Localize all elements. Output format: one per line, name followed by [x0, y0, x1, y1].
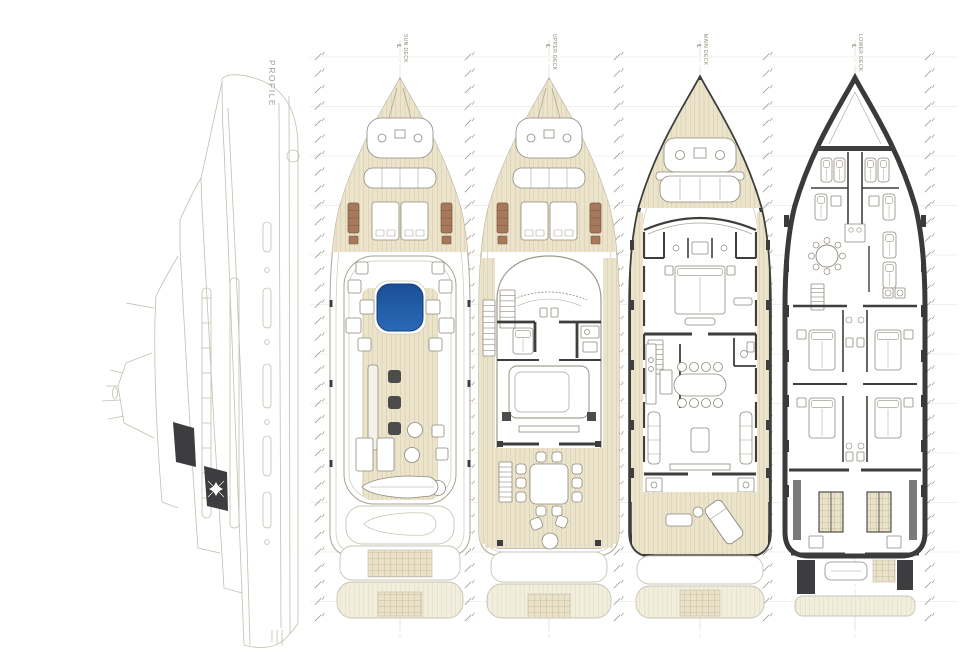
- profile-hull-window: [263, 364, 271, 408]
- station-number-mark: [472, 283, 474, 286]
- station-number-mark: [621, 250, 623, 253]
- deck-label-lower-deck: LOWER DECK: [857, 34, 863, 72]
- stanchion: [630, 300, 634, 310]
- station-number-mark: [621, 497, 623, 500]
- day-head: [738, 478, 754, 492]
- wardrobe: [869, 196, 879, 206]
- nightstand: [904, 398, 913, 407]
- station-number-mark: [322, 580, 324, 583]
- station-number-mark: [932, 398, 934, 401]
- station-number-mark: [322, 233, 324, 236]
- station-number-mark: [621, 415, 623, 418]
- station-number-mark: [932, 464, 934, 467]
- profile-dark-glass-panel: [173, 422, 196, 467]
- station-tick: [315, 235, 321, 241]
- stanchion: [630, 468, 634, 478]
- helm-seat: [540, 308, 547, 317]
- profile-whip-antenna: [126, 303, 154, 308]
- station-number-mark: [322, 316, 324, 319]
- station-number-mark: [322, 217, 324, 220]
- station-number-mark: [932, 365, 934, 368]
- toilet: [846, 452, 853, 461]
- station-tick: [925, 565, 931, 571]
- crew-mess-table: [816, 245, 838, 267]
- station-tick: [315, 120, 321, 126]
- deck-label-sun-deck: SUN DECK: [402, 34, 408, 63]
- station-number-mark: [472, 332, 474, 335]
- station-number-mark: [322, 299, 324, 302]
- station-tick: [315, 169, 321, 175]
- bar-stool: [388, 396, 401, 409]
- station-number-mark: [621, 431, 623, 434]
- station-number-mark: [472, 580, 474, 583]
- station-tick: [925, 87, 931, 93]
- profile-porthole: [265, 268, 270, 273]
- pillar: [497, 540, 503, 546]
- aft-sofa: [666, 514, 692, 526]
- station-tick: [763, 582, 769, 588]
- station-number-mark: [472, 233, 474, 236]
- station-number-mark: [322, 481, 324, 484]
- bed-bench: [685, 318, 715, 325]
- hull-frame-mark: [921, 260, 926, 272]
- mess-chair: [824, 238, 830, 244]
- station-number-mark: [322, 68, 324, 71]
- station-number-mark: [932, 349, 934, 352]
- station-number-mark: [932, 613, 934, 616]
- profile-keel: [222, 75, 298, 623]
- station-number-mark: [621, 382, 623, 385]
- station-tick: [614, 186, 620, 192]
- dining-chair: [678, 363, 687, 372]
- saloon-sofa: [740, 412, 752, 464]
- bar-stool: [388, 370, 401, 383]
- side-table: [591, 236, 600, 244]
- station-tick: [763, 120, 769, 126]
- centerline-symbol: ℄: [544, 44, 551, 48]
- station-number-mark: [770, 101, 772, 104]
- dining-chair: [536, 506, 546, 516]
- station-number-mark: [932, 580, 934, 583]
- station-number-mark: [621, 134, 623, 137]
- pantry-counter: [581, 326, 599, 338]
- profile-chine: [279, 103, 281, 628]
- aft-deck: [632, 492, 768, 554]
- station-number-mark: [472, 349, 474, 352]
- hull-frame-mark: [921, 440, 926, 452]
- dining-chair: [572, 464, 582, 474]
- mess-chair: [835, 264, 841, 270]
- station-number-mark: [322, 431, 324, 434]
- station-tick: [465, 120, 471, 126]
- station-tick: [925, 120, 931, 126]
- dining-chair: [714, 363, 723, 372]
- toilet: [857, 452, 864, 461]
- pillar: [595, 540, 601, 546]
- station-number-mark: [770, 184, 772, 187]
- station-number-mark: [621, 233, 623, 236]
- station-number-mark: [472, 134, 474, 137]
- station-tick: [614, 615, 620, 621]
- bar-stool: [388, 422, 401, 435]
- station-number-mark: [932, 481, 934, 484]
- station-number-mark: [932, 299, 934, 302]
- station-tick: [465, 219, 471, 225]
- station-number-mark: [621, 151, 623, 154]
- cleat: [468, 460, 471, 467]
- station-tick: [614, 582, 620, 588]
- station-tick: [315, 615, 321, 621]
- station-number-mark: [472, 464, 474, 467]
- station-tick: [315, 433, 321, 439]
- station-number-mark: [932, 118, 934, 121]
- station-number-mark: [770, 118, 772, 121]
- station-number-mark: [770, 151, 772, 154]
- deck-plan-upper-deck: [477, 78, 621, 618]
- station-tick: [614, 169, 620, 175]
- profile-mast: [118, 353, 154, 438]
- station-tick: [925, 582, 931, 588]
- hull-frame-mark: [921, 215, 926, 227]
- profile-hull-window: [263, 288, 271, 328]
- deck-seat: [436, 448, 448, 460]
- centerline-symbol: ℄: [850, 44, 857, 48]
- teak-side-deck: [757, 212, 769, 502]
- station-number-mark: [472, 68, 474, 71]
- station-number-mark: [932, 497, 934, 500]
- helm-seat: [551, 308, 558, 317]
- station-number-mark: [621, 481, 623, 484]
- station-number-mark: [621, 448, 623, 451]
- station-number-mark: [621, 530, 623, 533]
- hull-frame-mark: [784, 395, 789, 407]
- station-number-mark: [472, 596, 474, 599]
- station-number-mark: [322, 283, 324, 286]
- station-number-mark: [621, 101, 623, 104]
- station-number-mark: [621, 563, 623, 566]
- deck-seat: [429, 338, 442, 351]
- station-number-mark: [472, 514, 474, 517]
- wardrobe: [831, 196, 841, 206]
- toilet: [846, 338, 853, 347]
- station-number-mark: [322, 52, 324, 55]
- dining-chair: [690, 399, 699, 408]
- station-tick: [925, 186, 931, 192]
- deck-seat: [439, 280, 452, 293]
- station-number-mark: [322, 200, 324, 203]
- station-tick: [465, 565, 471, 571]
- stern-hatch: [378, 592, 422, 616]
- profile-maindeck-house: [201, 82, 242, 593]
- station-number-mark: [472, 217, 474, 220]
- station-number-mark: [472, 613, 474, 616]
- deck-seat: [346, 318, 361, 333]
- station-number-mark: [472, 167, 474, 170]
- profile-view: [102, 75, 299, 648]
- station-number-mark: [322, 596, 324, 599]
- stanchion: [630, 420, 634, 430]
- centerline-symbol: ℄: [395, 44, 402, 48]
- side-table: [587, 412, 596, 421]
- station-tick: [465, 582, 471, 588]
- hull-frame-mark: [784, 305, 789, 317]
- anchor-windlass: [664, 138, 736, 172]
- station-number-mark: [770, 580, 772, 583]
- station-number-mark: [932, 316, 934, 319]
- station-tick: [465, 186, 471, 192]
- station-tick: [315, 70, 321, 76]
- station-number-mark: [621, 283, 623, 286]
- station-tick: [925, 70, 931, 76]
- teak-aft-deck: [632, 492, 768, 554]
- station-number-mark: [472, 448, 474, 451]
- sunbed: [377, 438, 394, 471]
- station-number-mark: [621, 200, 623, 203]
- station-number-mark: [621, 266, 623, 269]
- station-tick: [763, 565, 769, 571]
- deck-seat: [360, 300, 374, 314]
- station-number-mark: [472, 250, 474, 253]
- station-number-mark: [621, 299, 623, 302]
- cocktail-table: [405, 448, 420, 463]
- stern-hatch: [528, 594, 570, 618]
- station-number-mark: [322, 349, 324, 352]
- station-number-mark: [472, 563, 474, 566]
- station-tick: [763, 70, 769, 76]
- nightstand: [665, 266, 673, 275]
- drawing-layers: [102, 40, 958, 647]
- station-number-mark: [621, 316, 623, 319]
- galley-island: [660, 370, 672, 394]
- profile-hull-window: [263, 222, 271, 252]
- station-tick: [315, 582, 321, 588]
- station-number-mark: [472, 266, 474, 269]
- dining-chair: [516, 492, 526, 502]
- dining-table: [674, 374, 726, 396]
- station-number-mark: [322, 151, 324, 154]
- shower: [692, 242, 708, 254]
- station-number-mark: [770, 167, 772, 170]
- station-number-mark: [322, 101, 324, 104]
- dining-chair: [516, 464, 526, 474]
- station-number-mark: [322, 332, 324, 335]
- mess-chair: [809, 253, 815, 259]
- cleat: [330, 380, 333, 387]
- deck-seat: [348, 280, 361, 293]
- station-number-mark: [322, 134, 324, 137]
- stanchion: [766, 300, 770, 310]
- dining-chair: [714, 399, 723, 408]
- station-number-mark: [621, 547, 623, 550]
- dining-chair: [572, 492, 582, 502]
- station-number-mark: [621, 580, 623, 583]
- station-tick: [614, 219, 620, 225]
- galley-counter: [646, 344, 656, 404]
- cleat: [330, 460, 333, 467]
- pillar: [497, 441, 503, 447]
- station-number-mark: [621, 167, 623, 170]
- station-number-mark: [472, 200, 474, 203]
- nightstand: [904, 330, 913, 339]
- station-number-mark: [621, 365, 623, 368]
- side-table: [442, 236, 451, 244]
- station-number-mark: [472, 299, 474, 302]
- station-number-mark: [621, 217, 623, 220]
- garage-locker: [797, 560, 815, 594]
- hull-frame-mark: [921, 305, 926, 317]
- station-number-mark: [322, 415, 324, 418]
- station-tick: [315, 136, 321, 142]
- station-tick: [763, 87, 769, 93]
- station-number-mark: [770, 52, 772, 55]
- station-tick: [614, 70, 620, 76]
- deck-seat: [356, 262, 368, 274]
- deck-seat: [432, 262, 444, 274]
- station-number-mark: [932, 68, 934, 71]
- station-number-mark: [770, 68, 772, 71]
- station-number-mark: [932, 332, 934, 335]
- station-number-mark: [932, 431, 934, 434]
- hull-frame-mark: [784, 485, 789, 497]
- station-tick: [763, 615, 769, 621]
- station-tick: [315, 516, 321, 522]
- station-number-mark: [770, 613, 772, 616]
- station-tick: [315, 367, 321, 373]
- station-number-mark: [472, 547, 474, 550]
- station-number-mark: [322, 448, 324, 451]
- station-number-mark: [621, 332, 623, 335]
- saloon-sofa: [648, 412, 660, 464]
- station-tick: [465, 70, 471, 76]
- station-tick: [925, 136, 931, 142]
- profile-porthole: [265, 540, 270, 545]
- deck-plan-lower-deck: [784, 78, 926, 616]
- station-number-mark: [322, 514, 324, 517]
- station-number-mark: [932, 448, 934, 451]
- station-number-mark: [472, 398, 474, 401]
- deck-plan-main-deck: [628, 78, 772, 618]
- station-number-mark: [621, 118, 623, 121]
- station-number-mark: [932, 596, 934, 599]
- sideboard: [519, 426, 579, 432]
- station-number-mark: [932, 415, 934, 418]
- deck-plan-sun-deck: [328, 78, 472, 618]
- hull-frame-mark: [784, 260, 789, 272]
- station-tick: [315, 268, 321, 274]
- station-number-mark: [322, 563, 324, 566]
- station-number-mark: [932, 514, 934, 517]
- generator: [809, 536, 823, 548]
- station-number-mark: [472, 101, 474, 104]
- deck-seat: [439, 318, 454, 333]
- garage-stairs: [873, 560, 895, 582]
- deck-seat: [426, 300, 440, 314]
- profile-sheer: [222, 79, 244, 645]
- station-number-mark: [932, 250, 934, 253]
- station-number-mark: [932, 547, 934, 550]
- aft-deck-ghost: [491, 552, 607, 582]
- coffee-table: [691, 428, 709, 452]
- station-number-mark: [932, 563, 934, 566]
- station-number-mark: [621, 85, 623, 88]
- mess-chair: [835, 242, 841, 248]
- station-number-mark: [621, 613, 623, 616]
- mess-chair: [813, 264, 819, 270]
- station-number-mark: [472, 415, 474, 418]
- station-number-mark: [932, 200, 934, 203]
- station-number-mark: [621, 184, 623, 187]
- teak-side-deck: [631, 212, 643, 502]
- sky-lounge-sofa: [509, 366, 589, 418]
- station-number-mark: [932, 151, 934, 154]
- hull-frame-mark: [921, 485, 926, 497]
- profile-porthole: [265, 420, 270, 425]
- station-number-mark: [322, 497, 324, 500]
- station-tick: [315, 318, 321, 324]
- profile-hardtop: [155, 256, 178, 508]
- station-number-mark: [472, 431, 474, 434]
- station-number-mark: [322, 250, 324, 253]
- station-tick: [315, 219, 321, 225]
- profile-porthole: [265, 340, 270, 345]
- jacuzzi: [377, 284, 423, 331]
- station-number-mark: [932, 217, 934, 220]
- station-tick: [465, 136, 471, 142]
- station-number-mark: [770, 217, 772, 220]
- station-number-mark: [322, 547, 324, 550]
- swim-platform: [795, 596, 915, 616]
- station-number-mark: [322, 365, 324, 368]
- profile-label: PROFILE: [267, 60, 277, 107]
- station-tick: [315, 565, 321, 571]
- station-tick: [315, 466, 321, 472]
- side-table: [693, 507, 703, 517]
- station-tick: [465, 615, 471, 621]
- station-tick: [614, 565, 620, 571]
- station-number-mark: [770, 250, 772, 253]
- station-number-mark: [472, 52, 474, 55]
- station-number-mark: [932, 283, 934, 286]
- dining-table: [530, 464, 568, 504]
- fuel-tank: [909, 480, 917, 540]
- station-number-mark: [621, 464, 623, 467]
- profile-waterline: [289, 96, 290, 633]
- washer: [895, 288, 905, 298]
- deck-label-upper-deck: UPPER DECK: [551, 34, 557, 71]
- station-number-mark: [932, 233, 934, 236]
- mess-chair: [824, 269, 830, 275]
- mess-chair: [813, 242, 819, 248]
- station-tick: [315, 334, 321, 340]
- station-number-mark: [322, 266, 324, 269]
- station-number-mark: [322, 118, 324, 121]
- station-number-mark: [932, 101, 934, 104]
- station-tick: [925, 615, 931, 621]
- station-tick: [614, 136, 620, 142]
- station-number-mark: [621, 398, 623, 401]
- dining-chair: [516, 478, 526, 488]
- station-number-mark: [621, 349, 623, 352]
- side-table: [349, 236, 358, 244]
- station-tick: [315, 384, 321, 390]
- station-number-mark: [322, 167, 324, 170]
- profile-hull-window: [263, 436, 271, 476]
- dining-chair: [702, 399, 711, 408]
- washer: [883, 288, 893, 298]
- station-number-mark: [932, 167, 934, 170]
- hull-frame-mark: [784, 215, 789, 227]
- tv-cabinet: [670, 464, 730, 470]
